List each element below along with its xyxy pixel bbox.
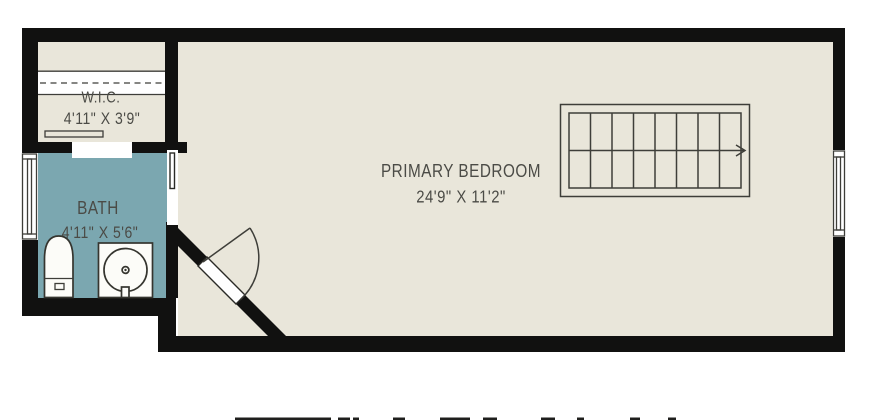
sink-faucet-stem bbox=[122, 287, 130, 298]
wall-wic-bottom-right bbox=[132, 142, 187, 153]
bath-door-leaf bbox=[170, 153, 175, 189]
bath-door bbox=[167, 150, 178, 225]
toilet bbox=[45, 236, 74, 298]
wall-step-corner bbox=[158, 298, 176, 352]
floor-plan-drawing bbox=[0, 0, 870, 420]
wic-doorway-opening bbox=[72, 142, 132, 158]
bedroom-dimensions: 24'9" X 11'2" bbox=[416, 188, 506, 206]
window-left bbox=[22, 153, 39, 240]
sink-drain-dot bbox=[124, 269, 126, 271]
bedroom-room-label: PRIMARY BEDROOM bbox=[381, 162, 541, 180]
wall-top bbox=[22, 28, 845, 42]
bath-dimensions: 4'11" X 5'6" bbox=[62, 225, 139, 242]
wall-wic-bedroom-divider bbox=[165, 42, 178, 153]
wall-bottom bbox=[158, 336, 845, 352]
window-left-opening bbox=[22, 153, 39, 240]
window-right bbox=[833, 150, 847, 237]
wic-dimensions: 4'11" X 3'9" bbox=[64, 111, 141, 128]
wic-room-label: W.I.C. bbox=[82, 90, 121, 106]
bath-room-label: BATH bbox=[77, 199, 119, 217]
floor-plan: W.I.C. 4'11" X 3'9" BATH 4'11" X 5'6" PR… bbox=[0, 0, 870, 420]
wall-wic-bottom-left bbox=[38, 142, 72, 153]
bath-fixtures bbox=[45, 236, 153, 298]
wall-bath-bottom bbox=[22, 298, 176, 316]
